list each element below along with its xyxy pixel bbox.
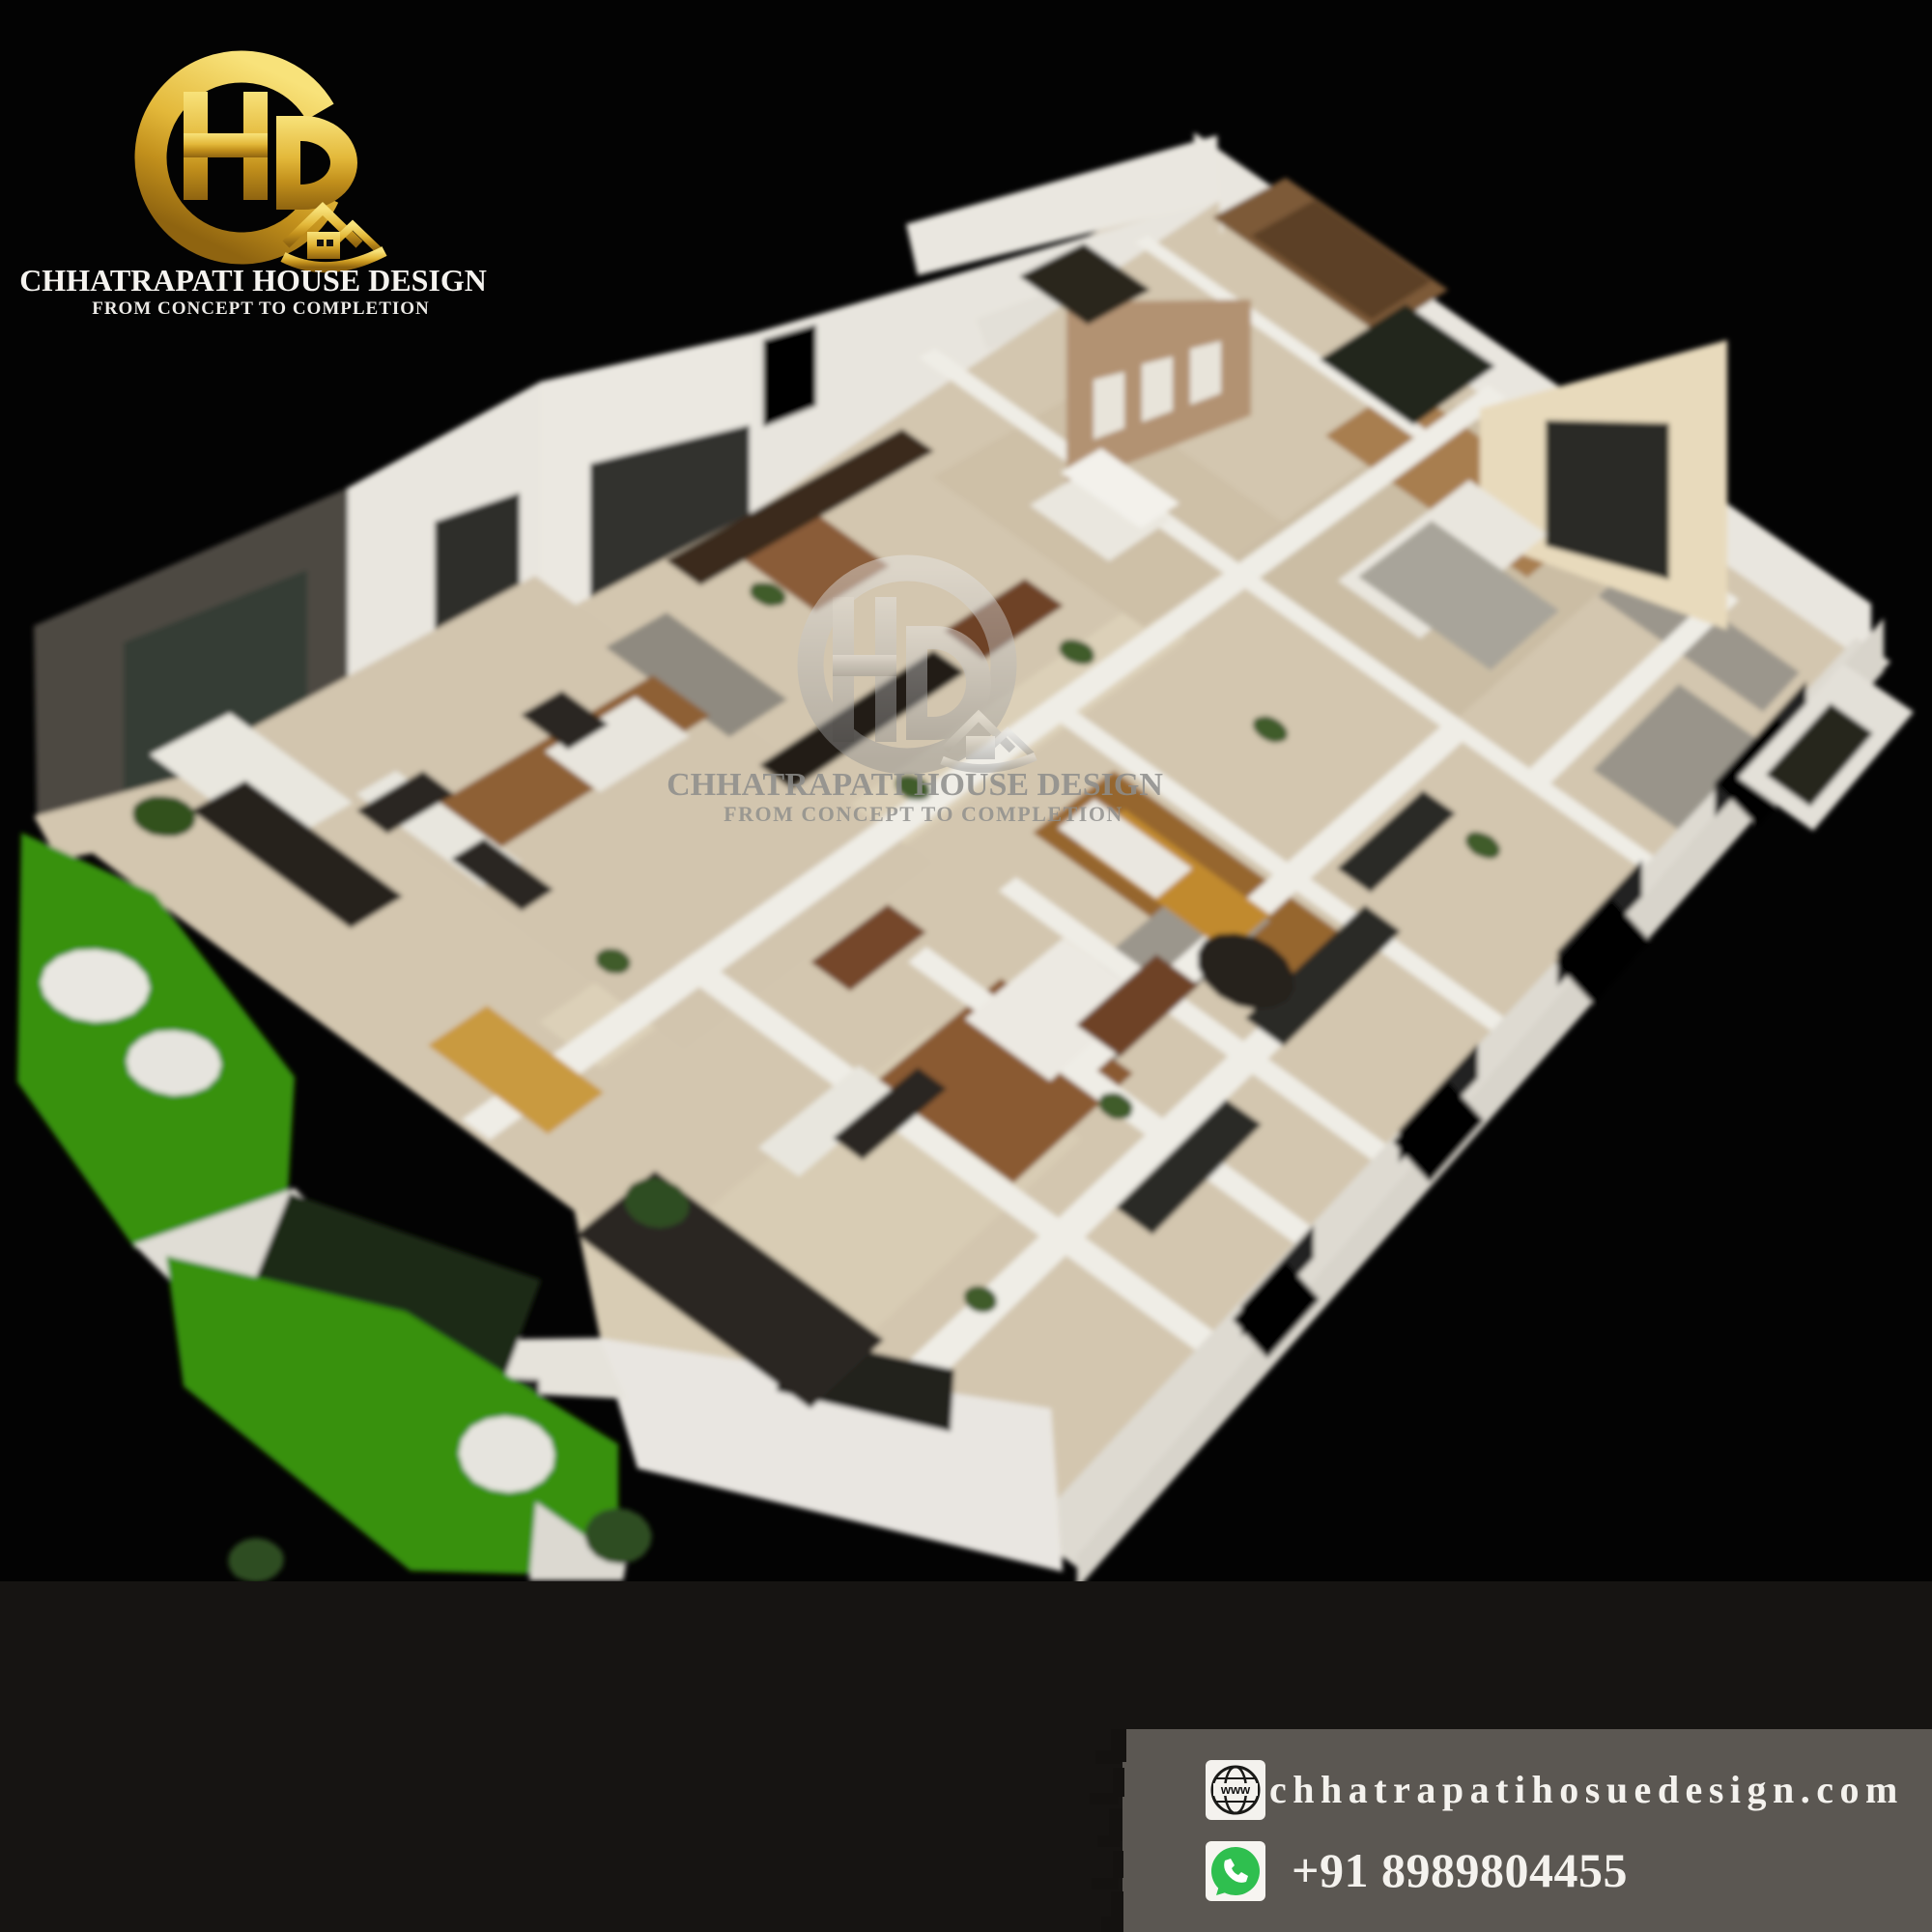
svg-text:+91 8989804455: +91 8989804455	[1292, 1843, 1628, 1897]
svg-text:chhatrapatihosuedesign.com: chhatrapatihosuedesign.com	[1269, 1768, 1904, 1811]
svg-text:www: www	[1220, 1782, 1251, 1797]
svg-text:CHHATRAPATI HOUSE DESIGN: CHHATRAPATI HOUSE DESIGN	[667, 767, 1163, 803]
svg-text:FROM CONCEPT TO COMPLETION: FROM CONCEPT TO COMPLETION	[92, 298, 430, 319]
svg-text:CHHATRAPATI HOUSE DESIGN: CHHATRAPATI HOUSE DESIGN	[19, 263, 487, 298]
svg-text:FROM CONCEPT TO COMPLETION: FROM CONCEPT TO COMPLETION	[724, 802, 1123, 826]
